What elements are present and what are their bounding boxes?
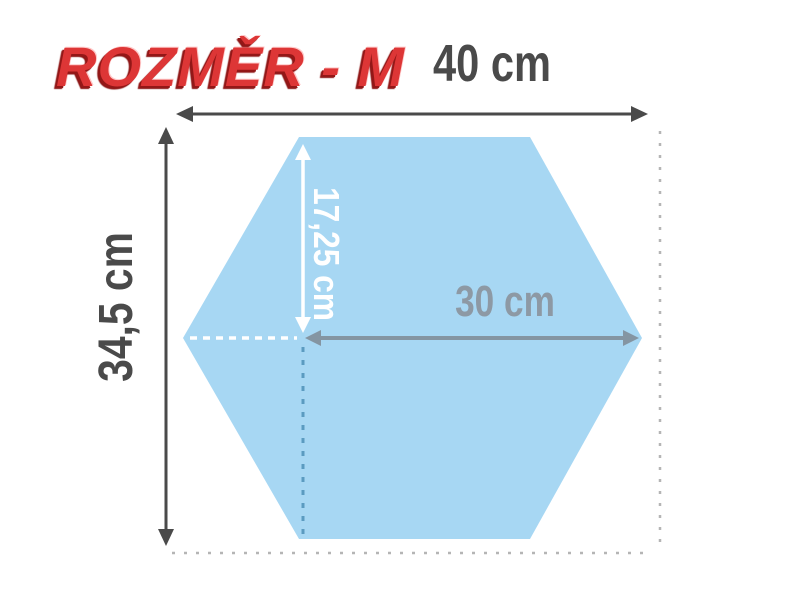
height-arrowhead-top: [158, 127, 174, 144]
width-arrowhead-left: [176, 106, 193, 122]
inner-width-dimension-label: 30 cm: [425, 278, 585, 326]
width-arrowhead-right: [631, 106, 648, 122]
width-dimension-label: 40 cm: [412, 36, 572, 92]
height-dimension-label: 34,5 cm: [91, 209, 143, 405]
diagram-title: ROZMĚR - M: [56, 34, 396, 100]
half-height-dimension-label: 17,25 cm: [306, 166, 346, 342]
dimension-diagram: ROZMĚR - M 40 cm 34,5 cm 17,25 cm 30 cm: [0, 0, 800, 600]
height-arrowhead-bottom: [158, 529, 174, 546]
